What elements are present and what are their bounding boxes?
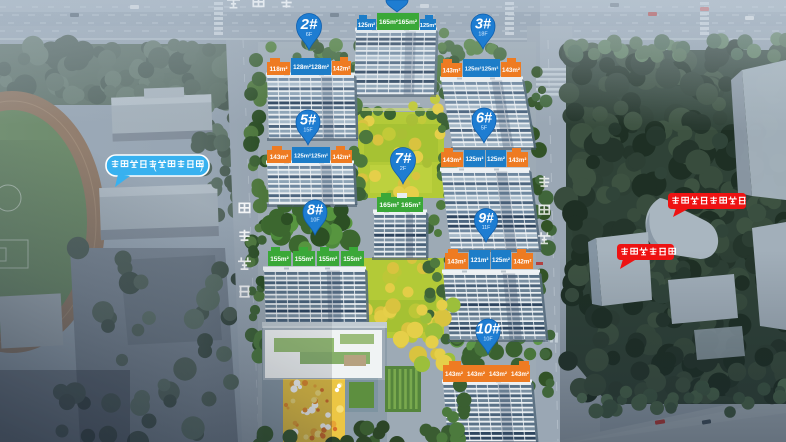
svg-text:6#: 6# — [476, 111, 492, 127]
svg-text:7#: 7# — [395, 150, 412, 167]
svg-text:): ) — [200, 162, 203, 172]
svg-text:143m²: 143m² — [443, 67, 461, 74]
svg-text:10F: 10F — [483, 336, 493, 342]
svg-text:155m²: 155m² — [319, 256, 337, 263]
svg-text:143m²: 143m² — [511, 371, 529, 378]
svg-text:121m²: 121m² — [471, 257, 489, 264]
svg-text:10#: 10# — [476, 322, 500, 338]
svg-text:125m²: 125m² — [358, 22, 375, 29]
svg-text:125m²125m²: 125m²125m² — [465, 65, 499, 72]
svg-text:2#: 2# — [300, 16, 318, 33]
svg-text:15F: 15F — [303, 127, 313, 133]
svg-text:11F: 11F — [482, 225, 491, 231]
svg-text:165m²165m²: 165m²165m² — [379, 19, 418, 26]
svg-text:143m²: 143m² — [489, 371, 507, 378]
svg-text:(: ( — [154, 162, 157, 172]
svg-text:142m²: 142m² — [333, 65, 350, 72]
svg-text:143m²: 143m² — [467, 371, 485, 378]
svg-text:125m²: 125m² — [466, 156, 484, 163]
svg-text:155m²: 155m² — [295, 256, 313, 263]
svg-text:2F: 2F — [400, 166, 407, 172]
svg-text:165m² 165m²: 165m² 165m² — [379, 202, 421, 209]
svg-text:3#: 3# — [475, 17, 491, 33]
svg-text:125m²: 125m² — [487, 156, 505, 163]
svg-text:128m²128m²: 128m²128m² — [293, 64, 329, 71]
svg-text:155m²: 155m² — [343, 256, 361, 263]
svg-text:155m²: 155m² — [270, 256, 288, 263]
svg-text:143m²: 143m² — [443, 157, 461, 164]
svg-text:143m²: 143m² — [270, 154, 288, 161]
svg-text:125m²: 125m² — [492, 257, 510, 264]
svg-text:125m²125m²: 125m²125m² — [294, 152, 328, 159]
svg-text:5#: 5# — [300, 113, 316, 129]
svg-text:118m²: 118m² — [269, 66, 287, 73]
svg-text:143m²: 143m² — [502, 67, 520, 74]
svg-text:10F: 10F — [310, 217, 320, 223]
svg-text:9#: 9# — [478, 211, 494, 226]
svg-text:142m²: 142m² — [514, 258, 532, 265]
svg-text:18F: 18F — [478, 31, 488, 37]
svg-text:142m²: 142m² — [333, 154, 351, 161]
svg-text:143m²: 143m² — [447, 258, 465, 265]
svg-text:5F: 5F — [481, 125, 488, 131]
svg-text:6F: 6F — [306, 32, 313, 38]
svg-text:8#: 8# — [307, 203, 323, 219]
svg-text:143m²: 143m² — [445, 371, 463, 378]
svg-text:125m²: 125m² — [420, 22, 436, 29]
svg-text:143m²: 143m² — [509, 157, 527, 164]
